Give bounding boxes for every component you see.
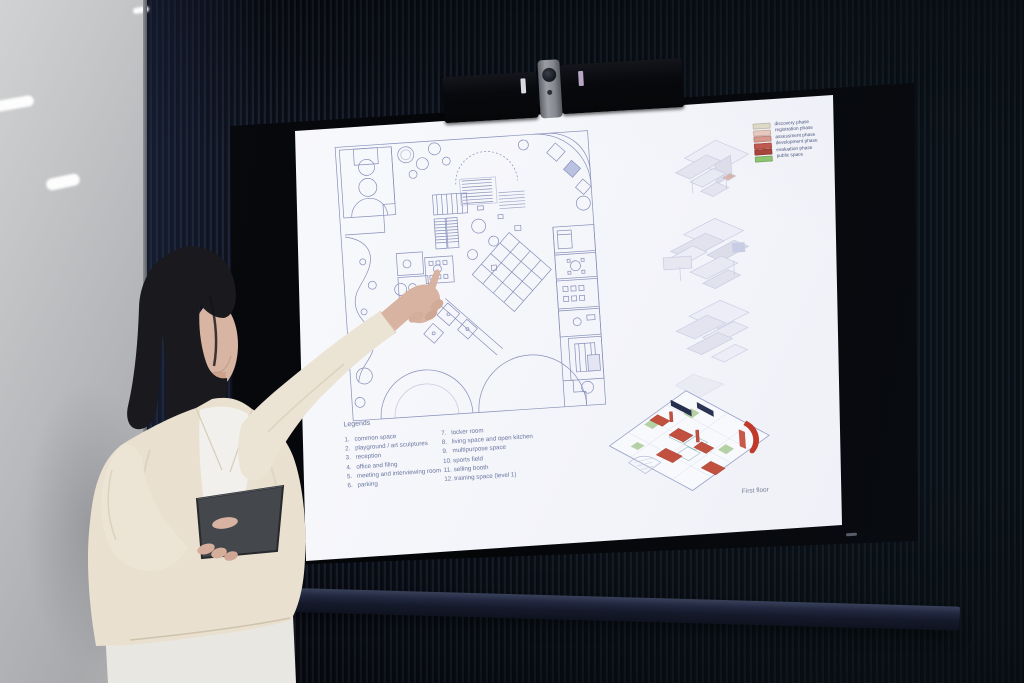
pointing-arm: [238, 311, 396, 481]
presentation-room-photo: Legends 1.common space 2.playground / ar…: [0, 0, 1024, 683]
presenter: [0, 0, 1024, 683]
index-finger: [426, 270, 440, 293]
